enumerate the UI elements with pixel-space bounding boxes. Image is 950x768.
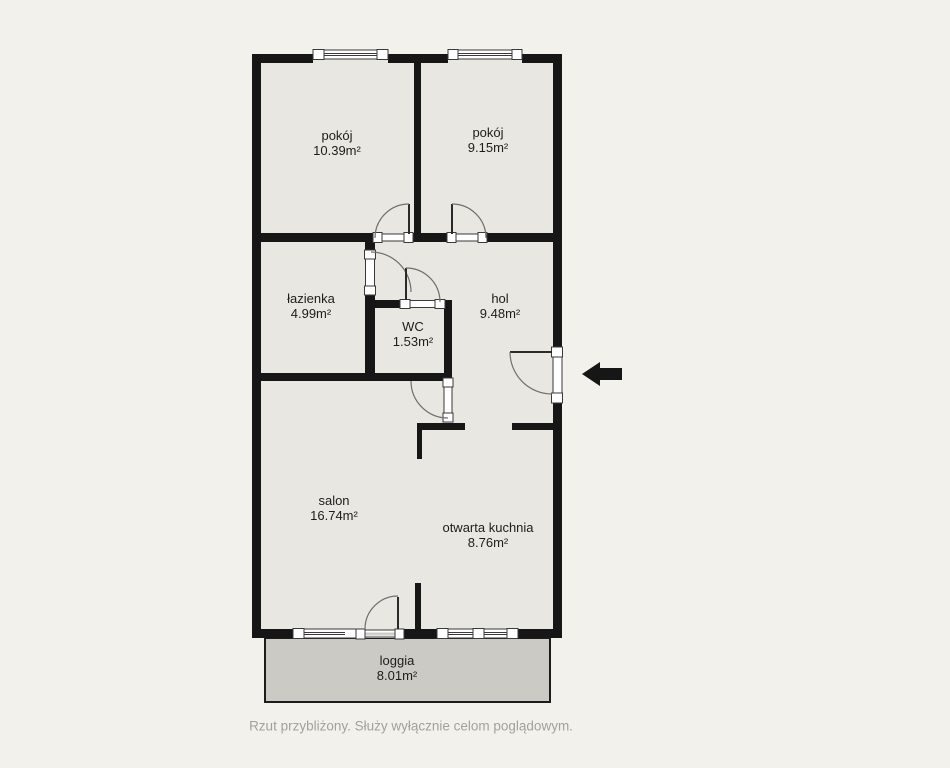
- room-label-wc: WC 1.53m²: [393, 319, 433, 349]
- wall-segment: [512, 423, 553, 430]
- door-frame-cap: [365, 250, 376, 259]
- wall-segment: [413, 233, 447, 242]
- floor-plan-drawing: [0, 0, 950, 768]
- room-name: otwarta kuchnia: [442, 520, 533, 535]
- room-name: salon: [310, 493, 358, 508]
- door-frame-cap: [365, 286, 376, 295]
- door-frame-cap: [443, 378, 453, 387]
- room-label-pokoj-2: pokój 9.15m²: [468, 125, 508, 155]
- wall-segment: [417, 423, 422, 459]
- room-area: 8.76m²: [442, 535, 533, 550]
- wall-segment: [404, 629, 437, 638]
- room-area: 4.99m²: [287, 306, 335, 321]
- wall-segment: [388, 54, 448, 63]
- wall-segment: [553, 54, 562, 638]
- room-area: 16.74m²: [310, 508, 358, 523]
- wall-segment: [252, 54, 313, 63]
- door-frame-cap: [395, 629, 404, 639]
- window-cap: [448, 50, 458, 60]
- door-frame-cap: [552, 393, 563, 403]
- room-label-otwarta-kuchnia: otwarta kuchnia 8.76m²: [442, 520, 533, 550]
- room-area: 9.48m²: [480, 306, 520, 321]
- window-cap: [313, 50, 324, 60]
- room-name: loggia: [377, 653, 417, 668]
- disclaimer-caption: Rzut przybliżony. Służy wyłącznie celom …: [249, 719, 573, 734]
- wall-segment: [487, 233, 553, 242]
- wall-segment: [252, 54, 261, 638]
- room-area: 10.39m²: [313, 143, 361, 158]
- window-bottom-right: [437, 629, 518, 639]
- floor-plan: pokój 10.39m² pokój 9.15m² łazienka 4.99…: [0, 0, 950, 768]
- room-label-loggia: loggia 8.01m²: [377, 653, 417, 683]
- window-top-left: [313, 50, 388, 60]
- wall-segment: [417, 423, 465, 430]
- room-label-pokoj-1: pokój 10.39m²: [313, 128, 361, 158]
- window-body: [448, 50, 522, 59]
- window-cap: [437, 629, 448, 639]
- room-name: hol: [480, 291, 520, 306]
- wall-segment: [261, 373, 452, 381]
- room-label-salon: salon 16.74m²: [310, 493, 358, 523]
- door-frame-cap: [356, 629, 365, 639]
- room-name: WC: [393, 319, 433, 334]
- wall-segment: [414, 63, 421, 233]
- room-name: pokój: [313, 128, 361, 143]
- window-cap: [473, 629, 484, 639]
- room-label-lazienka: łazienka 4.99m²: [287, 291, 335, 321]
- window-cap: [293, 629, 304, 639]
- window-cap: [507, 629, 518, 639]
- door-frame-cap: [373, 233, 382, 243]
- window-bottom-left: [293, 629, 356, 639]
- door-frame-cap: [552, 347, 563, 357]
- room-area: 1.53m²: [393, 334, 433, 349]
- wall-segment: [261, 233, 373, 242]
- door-threshold: [364, 633, 396, 636]
- wall-segment: [415, 583, 421, 629]
- room-label-hol: hol 9.48m²: [480, 291, 520, 321]
- room-area: 9.15m²: [468, 140, 508, 155]
- window-cap: [512, 50, 522, 60]
- window-top-right: [448, 50, 522, 60]
- room-name: pokój: [468, 125, 508, 140]
- room-name: łazienka: [287, 291, 335, 306]
- room-area: 8.01m²: [377, 668, 417, 683]
- wall-segment: [444, 300, 452, 373]
- window-cap: [377, 50, 388, 60]
- entrance-arrow-icon: [582, 362, 622, 386]
- wall-segment: [375, 300, 400, 308]
- door-frame-cap: [400, 300, 410, 309]
